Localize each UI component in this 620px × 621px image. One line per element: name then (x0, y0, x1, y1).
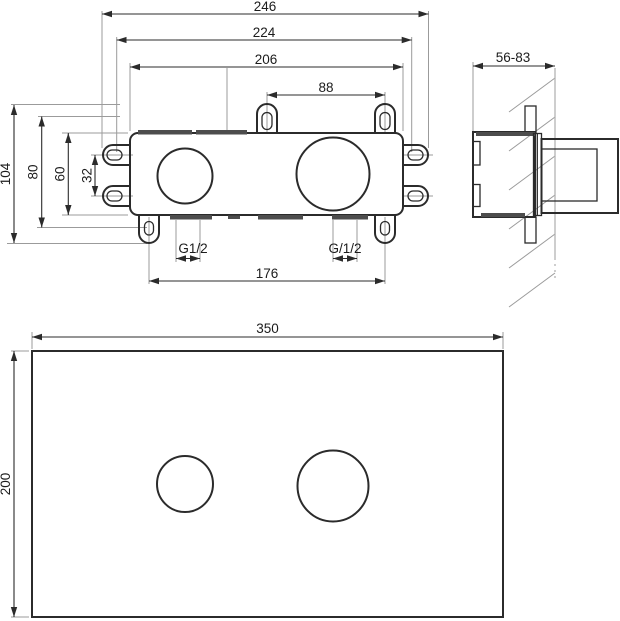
spout-housing-outer (542, 139, 619, 213)
valve-opening-left (158, 149, 213, 204)
port-strip (228, 216, 240, 220)
box-bottom-strip (481, 213, 525, 217)
front-view: 246 224 206 88 104 80 60 32 176 G1/2 G/1… (0, 0, 433, 284)
dim-label-lug-row-spacing: 80 (26, 164, 41, 179)
dim-label-bottom-lug-spacing: 176 (256, 266, 279, 281)
trim-plate-hole-left (157, 456, 213, 512)
installation-drawing: 246 224 206 88 104 80 60 32 176 G1/2 G/1… (0, 0, 620, 621)
spout-housing-inner (542, 149, 598, 201)
side-view: 56-83 (473, 50, 618, 307)
dim-label-left-port: G1/2 (178, 241, 207, 256)
extension-lines-trim (11, 332, 503, 617)
extension-lines (7, 11, 433, 284)
dim-label-body-width: 206 (255, 52, 278, 67)
port-strip (332, 215, 368, 220)
clip-notch-lower (473, 185, 480, 207)
dim-label-slot-width: 224 (253, 25, 276, 40)
dim-label-body-height: 60 (53, 166, 68, 181)
dim-label-right-port: G/1/2 (328, 241, 361, 256)
dim-label-plate-width: 350 (256, 321, 279, 336)
clip-notch-upper (473, 142, 480, 166)
port-strip (258, 215, 303, 220)
port-strip (170, 215, 212, 220)
wall-hatch-lines (509, 78, 555, 307)
mounting-tab-top (525, 106, 536, 133)
box-body-side-outline (473, 132, 535, 217)
clip-strip (196, 130, 247, 135)
dim-label-side-lug-spacing: 32 (80, 168, 95, 183)
trim-plate-view: 350 200 (0, 321, 503, 617)
dim-label-install-depth: 56-83 (496, 50, 531, 65)
dim-label-overall-height: 104 (0, 162, 13, 185)
dim-label-top-lug-spacing: 88 (318, 80, 333, 95)
clip-strip (138, 130, 192, 135)
technical-drawing-page: 246 224 206 88 104 80 60 32 176 G1/2 G/1… (0, 0, 620, 621)
mounting-tab-bottom (525, 217, 536, 243)
dim-label-plate-height: 200 (0, 473, 13, 496)
valve-opening-right (297, 138, 370, 211)
box-top-strip (476, 132, 535, 136)
dim-label-overall-width: 246 (254, 0, 277, 14)
mixer-body-outline (130, 133, 403, 215)
trim-plate-outline (32, 351, 503, 617)
trim-plate-hole-right (298, 451, 369, 522)
